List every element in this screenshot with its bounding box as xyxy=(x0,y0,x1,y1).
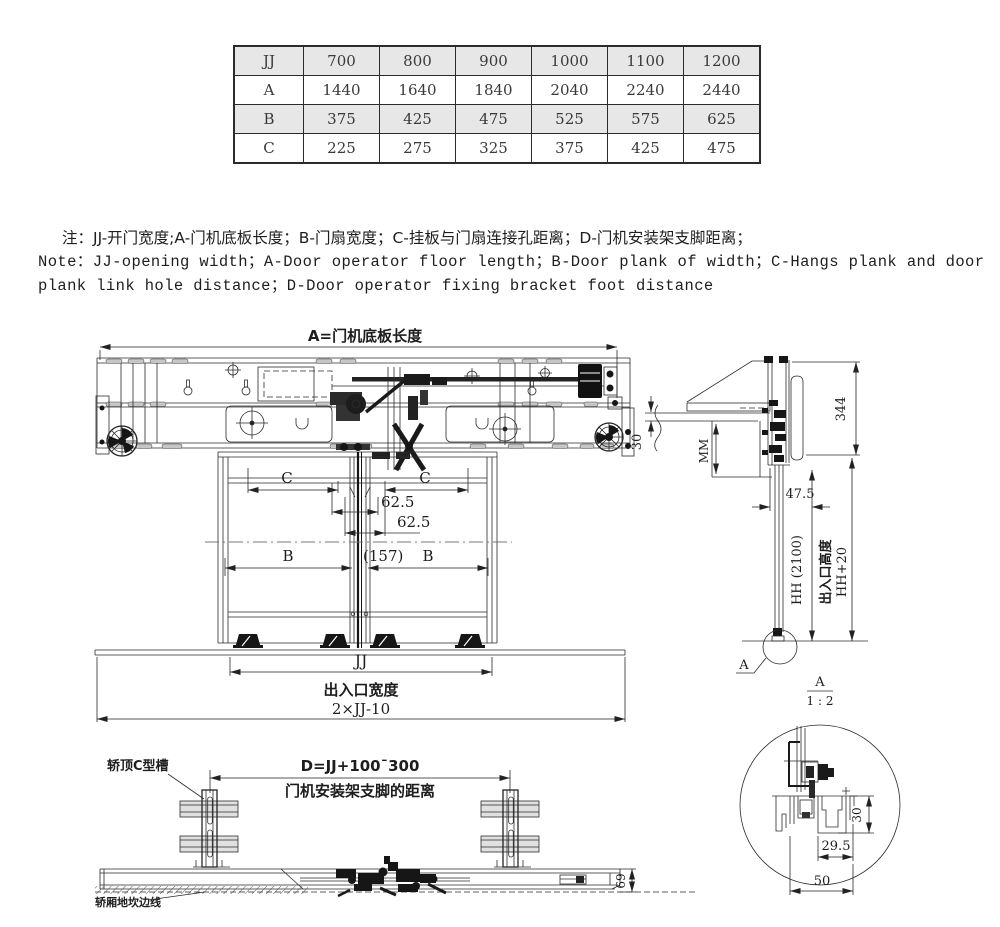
detail-a-view: 30 29.5 50 xyxy=(740,725,900,895)
row-label: JJ xyxy=(234,46,304,76)
roller-right xyxy=(489,413,521,445)
side-view: 30 MM 344 47.5 xyxy=(630,356,868,708)
entrance-height-label: 出入口高度 xyxy=(818,539,834,605)
table-cell: 475 xyxy=(456,105,532,134)
spec-table-body: JJ700800900100011001200A1440164018402040… xyxy=(234,46,760,163)
mounting-post-right xyxy=(481,790,539,867)
dim-total-width: 2×JJ-10 xyxy=(332,700,390,718)
mounting-gusset xyxy=(645,361,770,451)
dim-d-label: D=JJ+100¯300 xyxy=(301,757,420,775)
door-operator-header xyxy=(96,358,634,470)
table-cell: 525 xyxy=(532,105,608,134)
table-cell: 1000 xyxy=(532,46,608,76)
table-cell: 625 xyxy=(684,105,761,134)
table-cell: 1100 xyxy=(608,46,684,76)
table-cell: 1640 xyxy=(380,76,456,105)
dim-62-5-upper: 62.5 xyxy=(381,493,414,511)
row-label: B xyxy=(234,105,304,134)
detail-dim-50: 50 xyxy=(814,874,831,889)
row-label: A xyxy=(234,76,304,105)
roller-left xyxy=(236,407,268,439)
dim-hh-plus: HH+20 xyxy=(835,547,850,597)
plan-mechanism xyxy=(300,856,470,896)
dim-30: 30 xyxy=(630,434,645,451)
notes-block: 注：JJ-开门宽度;A-门机底板长度；B-门扇宽度；C-挂板与门扇连接孔距离；D… xyxy=(38,226,968,298)
entrance-width-label: 出入口宽度 xyxy=(323,681,399,699)
detail-a-scale-title: A xyxy=(814,675,825,690)
detail-a-scale: 1 : 2 xyxy=(807,694,834,708)
drive-belt xyxy=(352,377,598,382)
table-cell: 2240 xyxy=(608,76,684,105)
table-cell: 700 xyxy=(304,46,380,76)
hanger-plate-left xyxy=(226,406,332,442)
dim-a-label: A=门机底板长度 xyxy=(308,327,423,345)
table-row: JJ700800900100011001200 xyxy=(234,46,760,76)
bottom-plan-view: 轿顶C型槽 D=JJ+100¯300 门机安装架支脚的距离 xyxy=(95,757,698,909)
door-panels xyxy=(95,452,625,655)
table-row: B375425475525575625 xyxy=(234,105,760,134)
table-cell: 900 xyxy=(456,46,532,76)
dim-69: 69 xyxy=(614,873,628,888)
drawing-page: A=门机底板长度 xyxy=(0,0,1000,927)
note-line-cn: 注：JJ-开门宽度;A-门机底板长度；B-门扇宽度；C-挂板与门扇连接孔距离；D… xyxy=(38,226,968,250)
break-line xyxy=(655,405,661,451)
table-row: A144016401840204022402440 xyxy=(234,76,760,105)
header-beam-plan xyxy=(95,856,698,896)
table-cell: 1840 xyxy=(456,76,532,105)
dim-47-5: 47.5 xyxy=(786,487,815,502)
sill-profile xyxy=(772,796,858,833)
table-cell: 800 xyxy=(380,46,456,76)
note-line-en-2: plank link hole distance；D-Door operator… xyxy=(38,274,968,298)
dim-c-right: C xyxy=(419,469,430,487)
front-view: A=门机底板长度 xyxy=(95,327,634,722)
table-cell: 2440 xyxy=(684,76,761,105)
table-cell: 2040 xyxy=(532,76,608,105)
dim-c-left: C xyxy=(281,469,292,487)
table-row: C225275325375425475 xyxy=(234,134,760,164)
table-cell: 475 xyxy=(684,134,761,164)
table-cell: 575 xyxy=(608,105,684,134)
controller-box xyxy=(258,367,314,401)
detail-dim-29-5: 29.5 xyxy=(822,839,851,854)
car-front-wall xyxy=(712,421,772,477)
right-pulley xyxy=(595,408,634,456)
table-cell: 425 xyxy=(380,105,456,134)
table-cell: 375 xyxy=(304,105,380,134)
table-cell: 375 xyxy=(532,134,608,164)
table-cell: 275 xyxy=(380,134,456,164)
dim-mm: MM xyxy=(697,439,711,464)
bracket-distance-label: 门机安装架支脚的距离 xyxy=(285,782,435,800)
row-label: C xyxy=(234,134,304,164)
mounting-post-left xyxy=(180,790,238,867)
table-cell: 225 xyxy=(304,134,380,164)
table-cell: 1200 xyxy=(684,46,761,76)
car-top-channel-label: 轿顶C型槽 xyxy=(107,758,169,774)
table-cell: 325 xyxy=(456,134,532,164)
dim-b-right: B xyxy=(422,547,433,565)
note-line-en-1: Note：JJ-opening width；A-Door operator fl… xyxy=(38,250,968,274)
table-cell: 1440 xyxy=(304,76,380,105)
dim-jj: JJ xyxy=(353,651,368,670)
spec-table: JJ700800900100011001200A1440164018402040… xyxy=(233,45,761,164)
dim-344: 344 xyxy=(834,397,849,422)
dim-157: (157) xyxy=(363,547,403,565)
dim-b-left: B xyxy=(282,547,293,565)
dim-hh: HH (2100) xyxy=(790,535,805,605)
car-sill-edge-label: 轿厢地坎边线 xyxy=(95,895,161,909)
table-cell: 425 xyxy=(608,134,684,164)
detail-dim-30: 30 xyxy=(850,807,864,822)
sill-clamp-bracket xyxy=(784,726,850,798)
center-mechanism xyxy=(330,367,447,470)
dim-62-5-lower: 62.5 xyxy=(397,513,430,531)
detail-a-leader-label: A xyxy=(738,658,749,673)
detail-a-circle xyxy=(740,725,900,885)
